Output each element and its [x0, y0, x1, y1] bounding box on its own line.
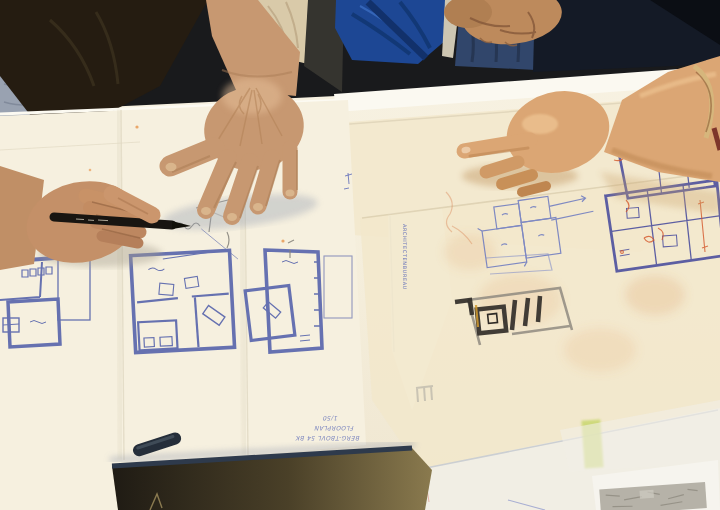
plan-note-line1: BERG-TBOVL 54 BK: [295, 435, 360, 442]
plan-note-line2: FLOORPLAN: [314, 425, 354, 432]
curled-finger: [522, 186, 546, 192]
plan-note-line3: 1/50: [322, 415, 338, 422]
orange-speck: [89, 169, 92, 172]
fold-crease-shade: [118, 110, 121, 460]
orange-speck: [135, 125, 138, 128]
sheet-side-label: ARCHITECTENBUREAU: [402, 224, 408, 290]
hand-highlight: [222, 78, 282, 114]
photo-architects-table: ARCHITECTENBUREAU BERG-TBOVL 54 BK FLOOR…: [0, 0, 720, 510]
knuckle-highlight: [522, 114, 558, 134]
orange-speck: [281, 239, 284, 242]
curled-finger: [102, 236, 138, 243]
photo-canvas: ARCHITECTENBUREAU BERG-TBOVL 54 BK FLOOR…: [0, 0, 720, 510]
